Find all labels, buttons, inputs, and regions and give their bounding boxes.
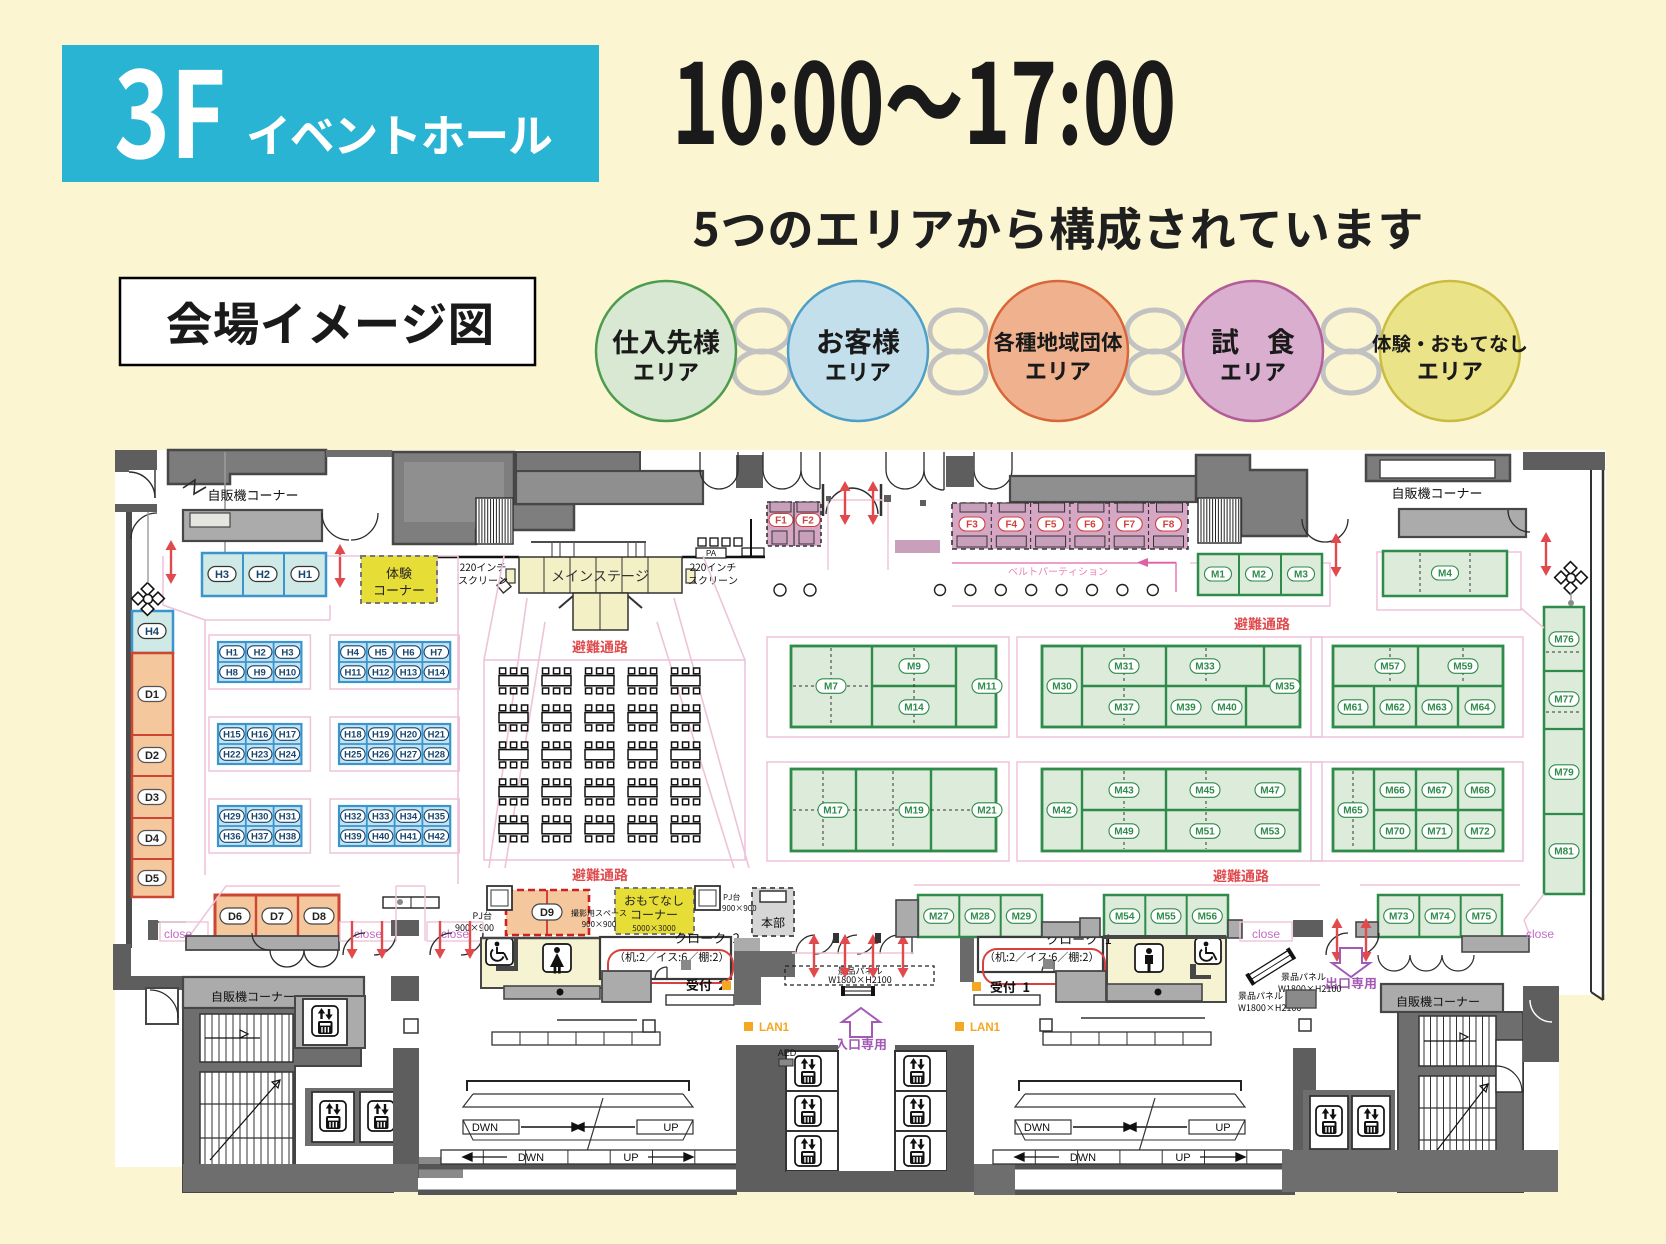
svg-text:H4: H4 (347, 647, 360, 658)
svg-text:H30: H30 (251, 811, 268, 822)
svg-text:H33: H33 (372, 811, 389, 822)
svg-text:H21: H21 (428, 729, 446, 740)
svg-text:F5: F5 (1045, 520, 1057, 531)
svg-text:F1: F1 (775, 516, 787, 527)
svg-text:M56: M56 (1198, 912, 1218, 923)
svg-text:D7: D7 (270, 911, 284, 923)
svg-text:DWN: DWN (472, 1122, 498, 1134)
svg-text:H17: H17 (279, 729, 296, 740)
svg-text:UP: UP (1175, 1152, 1190, 1164)
svg-text:M29: M29 (1012, 912, 1032, 923)
svg-text:H40: H40 (372, 831, 389, 842)
svg-text:H10: H10 (279, 667, 296, 678)
svg-text:H34: H34 (400, 811, 418, 822)
svg-text:H1: H1 (298, 569, 312, 581)
svg-text:UP: UP (1215, 1122, 1230, 1134)
svg-text:M77: M77 (1554, 695, 1574, 706)
svg-text:H35: H35 (428, 811, 446, 822)
svg-text:F7: F7 (1123, 520, 1135, 531)
svg-text:F8: F8 (1163, 520, 1175, 531)
svg-text:H25: H25 (344, 749, 362, 760)
svg-text:M51: M51 (1195, 827, 1215, 838)
svg-text:DWN: DWN (1070, 1152, 1096, 1164)
svg-text:H2: H2 (254, 647, 266, 658)
svg-text:H41: H41 (400, 831, 418, 842)
svg-text:M21: M21 (977, 806, 997, 817)
svg-text:F4: F4 (1005, 520, 1017, 531)
svg-text:H29: H29 (223, 811, 240, 822)
svg-text:H7: H7 (430, 647, 442, 658)
svg-text:H42: H42 (428, 831, 445, 842)
svg-text:D5: D5 (145, 873, 159, 885)
svg-text:D3: D3 (145, 792, 159, 804)
svg-text:H24: H24 (279, 749, 297, 760)
svg-text:H6: H6 (402, 647, 414, 658)
svg-text:H32: H32 (344, 811, 361, 822)
svg-text:M53: M53 (1260, 827, 1280, 838)
svg-text:D2: D2 (145, 750, 159, 762)
svg-text:H27: H27 (400, 749, 417, 760)
svg-text:H22: H22 (223, 749, 240, 760)
svg-text:D4: D4 (145, 833, 160, 845)
svg-text:H11: H11 (344, 667, 362, 678)
svg-text:M79: M79 (1554, 768, 1574, 779)
svg-text:M57: M57 (1380, 662, 1400, 673)
svg-text:M1: M1 (1211, 570, 1225, 581)
svg-text:close: close (1252, 927, 1280, 941)
svg-text:M14: M14 (904, 703, 924, 714)
svg-text:H3: H3 (281, 647, 293, 658)
svg-text:M27: M27 (929, 912, 949, 923)
svg-text:M17: M17 (823, 806, 843, 817)
svg-text:M61: M61 (1343, 703, 1363, 714)
svg-text:M42: M42 (1052, 806, 1072, 817)
svg-text:M55: M55 (1156, 912, 1176, 923)
svg-text:M73: M73 (1389, 912, 1409, 923)
svg-text:F3: F3 (966, 520, 978, 531)
svg-text:H3: H3 (215, 569, 229, 581)
svg-text:H1: H1 (226, 647, 239, 658)
svg-text:H15: H15 (223, 729, 241, 740)
svg-text:M37: M37 (1114, 703, 1134, 714)
svg-text:M7: M7 (824, 682, 838, 693)
svg-text:M70: M70 (1385, 827, 1405, 838)
svg-text:M19: M19 (904, 806, 924, 817)
svg-text:H5: H5 (375, 647, 388, 658)
svg-text:M47: M47 (1260, 786, 1280, 797)
svg-text:M81: M81 (1554, 847, 1574, 858)
svg-text:M33: M33 (1195, 662, 1215, 673)
svg-text:M3: M3 (1294, 570, 1308, 581)
svg-text:M64: M64 (1470, 703, 1490, 714)
svg-text:M71: M71 (1427, 827, 1447, 838)
svg-text:M74: M74 (1430, 912, 1450, 923)
svg-text:H9: H9 (254, 667, 266, 678)
svg-text:M2: M2 (1252, 570, 1266, 581)
svg-text:LAN1: LAN1 (970, 1022, 1001, 1034)
svg-text:M65: M65 (1343, 806, 1363, 817)
svg-text:H39: H39 (344, 831, 361, 842)
svg-text:M31: M31 (1114, 662, 1134, 673)
svg-text:H26: H26 (372, 749, 389, 760)
svg-text:M67: M67 (1427, 786, 1447, 797)
svg-text:H23: H23 (251, 749, 268, 760)
svg-text:close: close (1526, 927, 1554, 941)
svg-text:H38: H38 (279, 831, 296, 842)
svg-text:H31: H31 (279, 811, 297, 822)
svg-text:M62: M62 (1385, 703, 1405, 714)
svg-text:H18: H18 (344, 729, 361, 740)
svg-text:M4: M4 (1438, 569, 1452, 580)
svg-text:H20: H20 (400, 729, 417, 740)
svg-text:M35: M35 (1275, 682, 1295, 693)
svg-text:LAN1: LAN1 (759, 1022, 790, 1034)
svg-text:AED: AED (778, 1048, 797, 1058)
svg-text:F2: F2 (802, 516, 814, 527)
svg-text:M63: M63 (1427, 703, 1447, 714)
svg-text:H36: H36 (223, 831, 240, 842)
svg-text:DWN: DWN (1024, 1122, 1050, 1134)
svg-text:H4: H4 (145, 626, 160, 638)
svg-text:H16: H16 (251, 729, 268, 740)
svg-text:H28: H28 (428, 749, 445, 760)
svg-text:M30: M30 (1052, 682, 1072, 693)
svg-text:M49: M49 (1114, 827, 1134, 838)
svg-text:M40: M40 (1217, 703, 1237, 714)
svg-text:D8: D8 (312, 911, 326, 923)
svg-text:M39: M39 (1176, 703, 1196, 714)
svg-text:D9: D9 (540, 907, 554, 919)
svg-text:M45: M45 (1195, 786, 1215, 797)
svg-text:M54: M54 (1115, 912, 1135, 923)
svg-text:M75: M75 (1472, 912, 1492, 923)
svg-text:M9: M9 (907, 662, 921, 673)
svg-text:UP: UP (663, 1122, 678, 1134)
svg-text:M76: M76 (1554, 635, 1574, 646)
svg-text:H19: H19 (372, 729, 389, 740)
svg-text:M59: M59 (1453, 662, 1473, 673)
svg-text:H8: H8 (226, 667, 238, 678)
svg-text:M66: M66 (1385, 786, 1405, 797)
svg-text:F6: F6 (1084, 520, 1096, 531)
svg-text:UP: UP (623, 1152, 638, 1164)
svg-text:H13: H13 (400, 667, 417, 678)
svg-text:M72: M72 (1470, 827, 1490, 838)
svg-text:H12: H12 (372, 667, 389, 678)
svg-text:D6: D6 (228, 911, 242, 923)
svg-text:H37: H37 (251, 831, 268, 842)
svg-text:PA: PA (706, 549, 717, 558)
svg-text:H14: H14 (428, 667, 446, 678)
svg-text:DWN: DWN (518, 1152, 544, 1164)
svg-text:M28: M28 (970, 912, 990, 923)
svg-text:M68: M68 (1470, 786, 1490, 797)
svg-text:H2: H2 (256, 569, 270, 581)
svg-text:M11: M11 (978, 682, 997, 693)
svg-text:D1: D1 (145, 689, 159, 701)
svg-text:M43: M43 (1114, 786, 1134, 797)
